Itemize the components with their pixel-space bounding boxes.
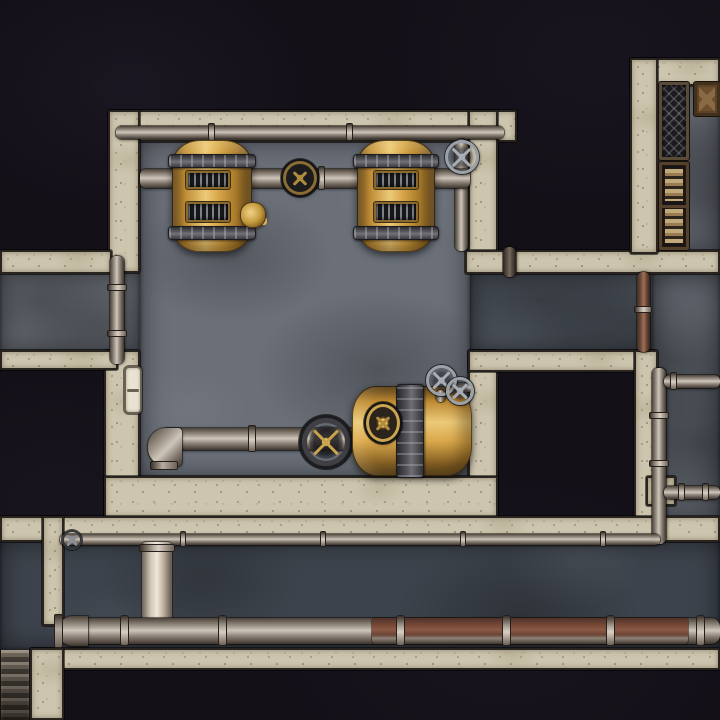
pipe-end-cap [58,616,88,646]
pipe-branch-lower [664,486,720,499]
boiler-vent [186,202,230,222]
book-stack [664,168,684,202]
boiler-band [168,154,256,168]
wall-corridor-bottom [30,648,720,670]
boiler-band [353,226,439,240]
pipe-joint [139,544,175,552]
wall-boilerroom-bottom [104,476,498,518]
valve-wheel-north[interactable] [445,140,479,174]
stairs-bottom-left[interactable] [0,650,30,720]
pipe-joint [649,412,669,419]
pipe-joint [180,531,186,547]
boiler-vent [186,171,230,189]
pipe-joint [107,330,127,337]
pipe-joint [606,615,615,646]
wall-stairs-side [30,648,64,720]
storage-rack[interactable] [659,82,689,160]
duct-vertical [142,542,172,626]
boiler-band [396,384,424,478]
pipe-joint [248,425,256,452]
pipe-top-wall [116,126,504,139]
boiler-vent [374,202,418,222]
valve-corridor[interactable] [62,530,82,550]
wall-corridor-spur [42,516,64,626]
pipe-joint [634,306,652,313]
pipe-joint [460,531,466,547]
pipe-joint [120,615,129,646]
map-canvas[interactable] [0,0,720,720]
pipe-riser-east [652,368,666,544]
boiler-band [168,226,256,240]
book-stack [664,208,684,244]
pipe-elbow-west [148,428,182,466]
pipe-joint [678,483,685,501]
pipe-joint [320,531,326,547]
wall-armory-west [630,58,658,254]
pressure-gauge[interactable] [283,161,317,195]
pipe-joint [502,615,511,646]
pipe-joint [218,615,227,646]
pipe-joint [649,460,669,467]
wall-darkroom-top [468,350,656,372]
boiler-vent [374,171,418,189]
boiler-band [353,154,439,168]
wall-west-band-lower [0,350,118,370]
door-west-wall[interactable] [124,366,142,414]
pipe-west-riser [110,256,124,364]
pipe-joint [702,483,709,501]
pipe-joint [346,123,353,141]
pipe-joint [600,531,606,547]
valve-wheel-small-b[interactable] [446,377,474,405]
boiler-gauge [366,404,400,442]
brass-spigot[interactable] [240,202,266,228]
pipe-joint [318,166,325,190]
pipe-joint [107,284,127,291]
wooden-crate[interactable] [694,82,720,116]
wall-west-band-upper [0,250,112,274]
pipe-joint [396,615,405,646]
pipe-stub-band [503,247,516,277]
valve-wheel-main[interactable] [302,418,350,466]
pipe-rust-section [372,618,688,644]
pipe-joint [208,123,215,141]
pipe-joint [696,615,705,646]
pipe-joint [670,372,677,390]
